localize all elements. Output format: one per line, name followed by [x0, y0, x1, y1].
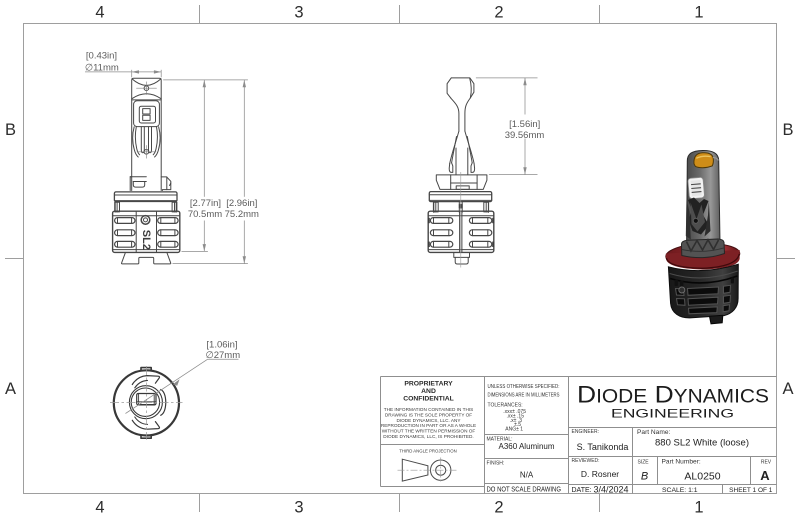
- svg-text:SL2: SL2: [140, 230, 152, 250]
- svg-text:75.2mm: 75.2mm: [225, 209, 259, 220]
- svg-text:N/A: N/A: [520, 471, 534, 480]
- svg-text:SHEET 1 OF 1: SHEET 1 OF 1: [729, 487, 773, 494]
- svg-text:2: 2: [494, 499, 503, 517]
- svg-text:CONFIDENTIAL: CONFIDENTIAL: [403, 396, 454, 403]
- svg-text:REV: REV: [761, 460, 772, 466]
- svg-text:ENGINEER:: ENGINEER:: [572, 429, 600, 435]
- svg-text:REPRODUCTION IN PART OR AS A W: REPRODUCTION IN PART OR AS A WHOLE: [381, 423, 476, 428]
- svg-text:B: B: [641, 471, 648, 483]
- svg-text:SIZE: SIZE: [638, 460, 650, 466]
- svg-text:4: 4: [95, 499, 104, 517]
- svg-text:AND: AND: [421, 388, 436, 395]
- svg-text:UNLESS OTHERWISE SPECIFIED:: UNLESS OTHERWISE SPECIFIED:: [488, 384, 560, 390]
- svg-text:∅11mm: ∅11mm: [85, 62, 119, 73]
- svg-text:DATE:: DATE:: [572, 487, 592, 494]
- svg-text:PROPRIETARY: PROPRIETARY: [404, 381, 453, 388]
- svg-text:2: 2: [494, 4, 503, 22]
- svg-text:39.56mm: 39.56mm: [505, 130, 545, 141]
- svg-text:A: A: [782, 380, 793, 398]
- svg-text:3: 3: [294, 499, 303, 517]
- svg-text:ENGINEERING: ENGINEERING: [611, 407, 734, 421]
- svg-text:DO NOT SCALE DRAWING: DO NOT SCALE DRAWING: [487, 487, 562, 494]
- svg-text:AL0250: AL0250: [684, 471, 720, 483]
- svg-text:DRAWING IS THE SOLE PROPERTY O: DRAWING IS THE SOLE PROPERTY OF: [385, 412, 472, 417]
- svg-text:DIODE DYNAMICS, LLC, IS PROHIB: DIODE DYNAMICS, LLC, IS PROHIBITED.: [383, 434, 473, 439]
- svg-text:A: A: [760, 468, 770, 483]
- svg-text:WITHOUT THE WRITTEN PERMISSION: WITHOUT THE WRITTEN PERMISSION OF: [382, 429, 476, 434]
- svg-text:A: A: [5, 380, 16, 398]
- svg-text:3: 3: [294, 4, 303, 22]
- svg-text:880 SL2 White (loose): 880 SL2 White (loose): [655, 438, 749, 449]
- svg-text:TOLERANCES:: TOLERANCES:: [488, 403, 523, 409]
- svg-text:A360 Aluminum: A360 Aluminum: [498, 442, 554, 451]
- svg-text:Part Name:: Part Name:: [637, 429, 671, 436]
- svg-text:[2.77in]: [2.77in]: [190, 198, 221, 209]
- svg-text:DIODE DYNAMICS: DIODE DYNAMICS: [577, 382, 769, 409]
- svg-text:B: B: [782, 121, 793, 139]
- svg-text:[2.96in]: [2.96in]: [226, 198, 257, 209]
- svg-text:SCALE: 1:1: SCALE: 1:1: [662, 487, 698, 494]
- svg-text:1: 1: [694, 4, 703, 22]
- svg-text:[1.56in]: [1.56in]: [509, 119, 540, 130]
- svg-text:∅27mm: ∅27mm: [205, 350, 240, 361]
- svg-text:S. Tanikonda: S. Tanikonda: [577, 442, 629, 452]
- svg-text:Part Number:: Part Number:: [662, 459, 701, 466]
- svg-text:ANG± 1: ANG± 1: [505, 427, 523, 433]
- svg-text:DIODE DYNAMICS, LLC. ANY: DIODE DYNAMICS, LLC. ANY: [396, 418, 461, 423]
- svg-text:THE INFORMATION CONTAINED IN T: THE INFORMATION CONTAINED IN THIS: [384, 407, 474, 412]
- svg-text:FINISH:: FINISH:: [487, 461, 505, 467]
- svg-text:REVIEWED:: REVIEWED:: [572, 458, 600, 464]
- svg-text:1: 1: [694, 499, 703, 517]
- svg-text:THIRD ANGLE PROJECTION: THIRD ANGLE PROJECTION: [399, 449, 457, 454]
- svg-text:B: B: [5, 121, 16, 139]
- svg-text:70.5mm: 70.5mm: [188, 209, 222, 220]
- svg-text:3/4/2024: 3/4/2024: [594, 484, 629, 494]
- svg-text:DIMENSIONS ARE IN MILLIMETERS: DIMENSIONS ARE IN MILLIMETERS: [488, 393, 561, 399]
- svg-text:D. Rosner: D. Rosner: [581, 469, 619, 479]
- svg-text:[0.43in]: [0.43in]: [86, 51, 117, 62]
- svg-text:4: 4: [95, 4, 104, 22]
